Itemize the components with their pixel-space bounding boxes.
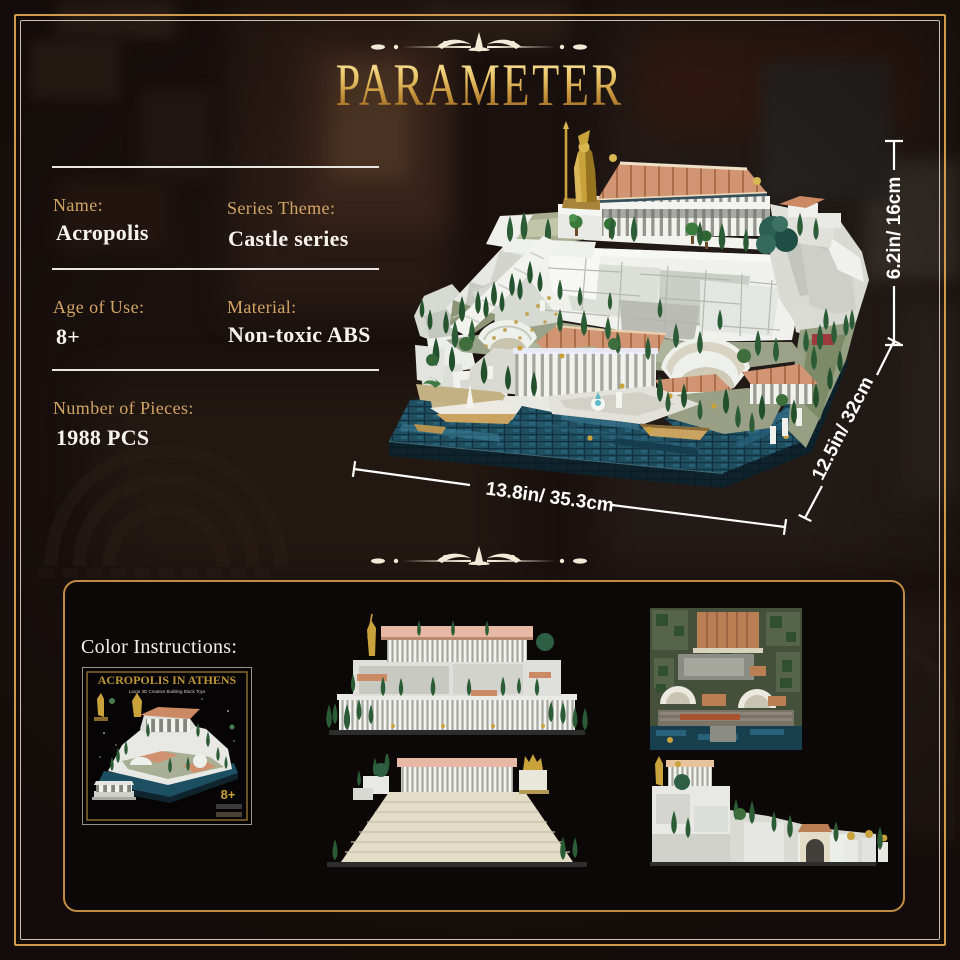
svg-text:6.2in/ 16cm: 6.2in/ 16cm xyxy=(884,177,905,279)
svg-text:Large 3D Creative Building Blo: Large 3D Creative Building Block Toys xyxy=(129,689,206,694)
svg-text:8+: 8+ xyxy=(221,787,236,802)
svg-text:13.8in/ 35.3cm: 13.8in/ 35.3cm xyxy=(484,479,615,517)
svg-text:ACROPOLIS IN ATHENS: ACROPOLIS IN ATHENS xyxy=(98,673,237,687)
